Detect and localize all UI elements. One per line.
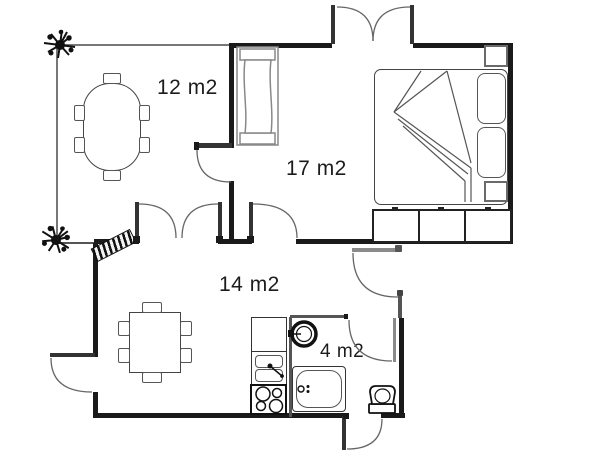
floor-plan: 12 m2 17 m2 14 m2 4 m2 ↕↕↕ ↕↕↕ ↕↕↕ xyxy=(0,0,600,450)
door-arc-dining-right xyxy=(182,204,218,238)
stove-burners xyxy=(256,387,283,413)
door-arc-dining-bedroom xyxy=(197,150,231,182)
sink-tap-icon xyxy=(268,364,283,377)
door-arc-balcony-left xyxy=(337,7,373,41)
plant-icon xyxy=(36,220,76,258)
door-arcs xyxy=(51,7,410,449)
round-basin xyxy=(288,322,316,346)
door-arc-exit-bottom xyxy=(347,419,382,449)
door-arc-exit-left xyxy=(51,358,92,392)
radiator xyxy=(237,47,278,145)
bathtub-tap-icon xyxy=(298,386,309,393)
toilet xyxy=(369,386,395,413)
door-arc-hall xyxy=(353,253,398,297)
door-arc-dining-left xyxy=(139,204,176,238)
bed-blanket-fold xyxy=(394,71,471,202)
plant-icon xyxy=(44,30,75,58)
door-jamb-caps xyxy=(133,142,349,419)
door-arc-bedroom-hall xyxy=(253,204,297,238)
plan-overlay xyxy=(0,0,600,450)
door-arc-balcony-right xyxy=(373,7,410,41)
door-arc-bathroom xyxy=(349,320,392,361)
